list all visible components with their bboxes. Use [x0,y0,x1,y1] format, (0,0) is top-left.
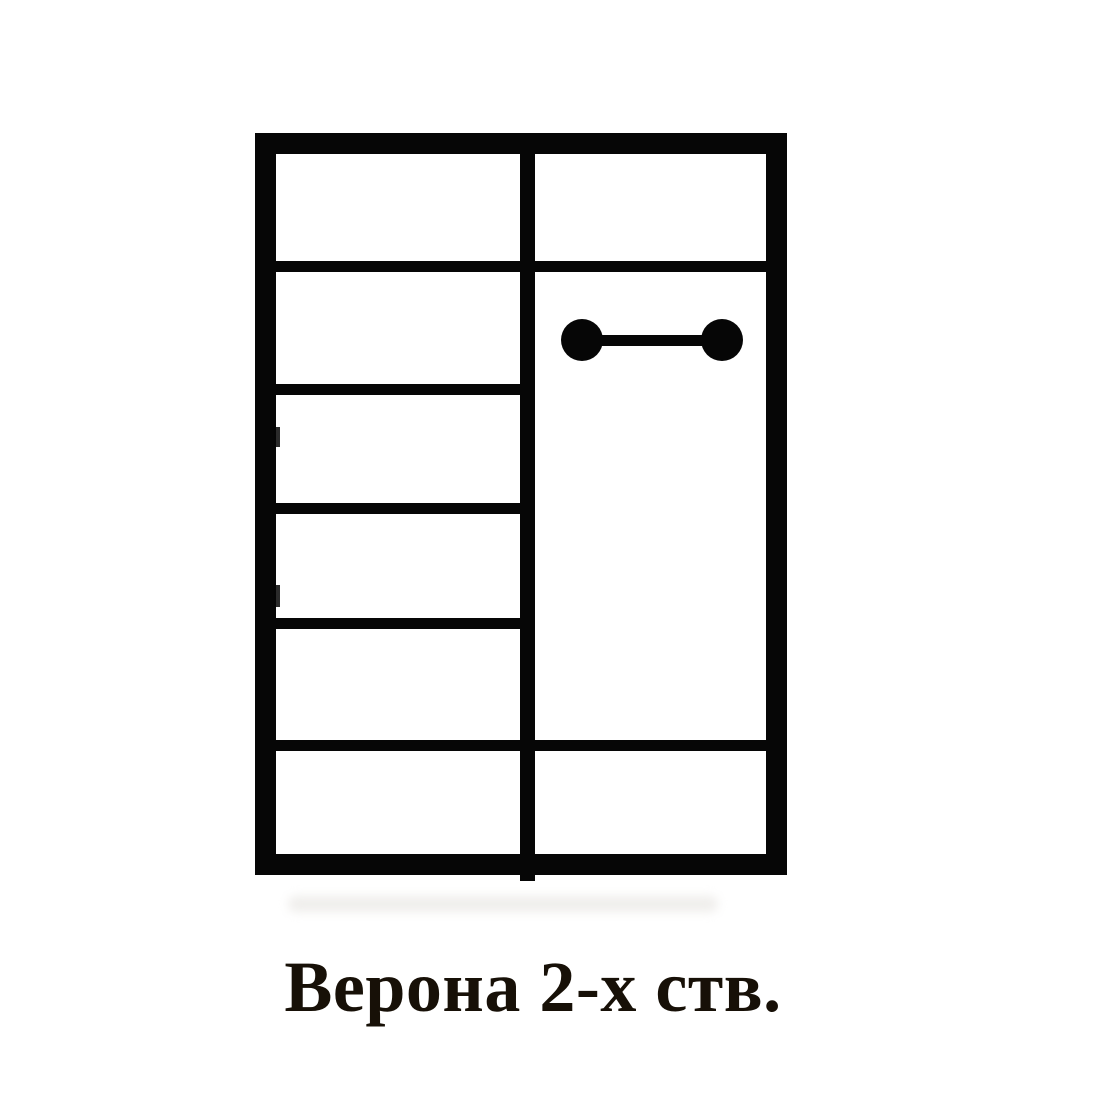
shelf-line-full [270,261,772,272]
product-caption: Верона 2-х ств. [0,951,1066,1023]
hinge-mark [274,427,280,447]
page-background: Верона 2-х ств. [0,0,1100,1100]
hanging-rail-end-right-icon [701,319,743,361]
shelf-line-left [270,618,532,629]
hanging-rail-end-left-icon [561,319,603,361]
shelf-line-left [270,503,532,514]
hinge-mark [274,585,280,607]
shelf-line-left [270,384,532,395]
wardrobe-scheme [0,0,1100,1100]
watermark-smudge [288,896,718,912]
shelf-line-full [270,740,772,751]
